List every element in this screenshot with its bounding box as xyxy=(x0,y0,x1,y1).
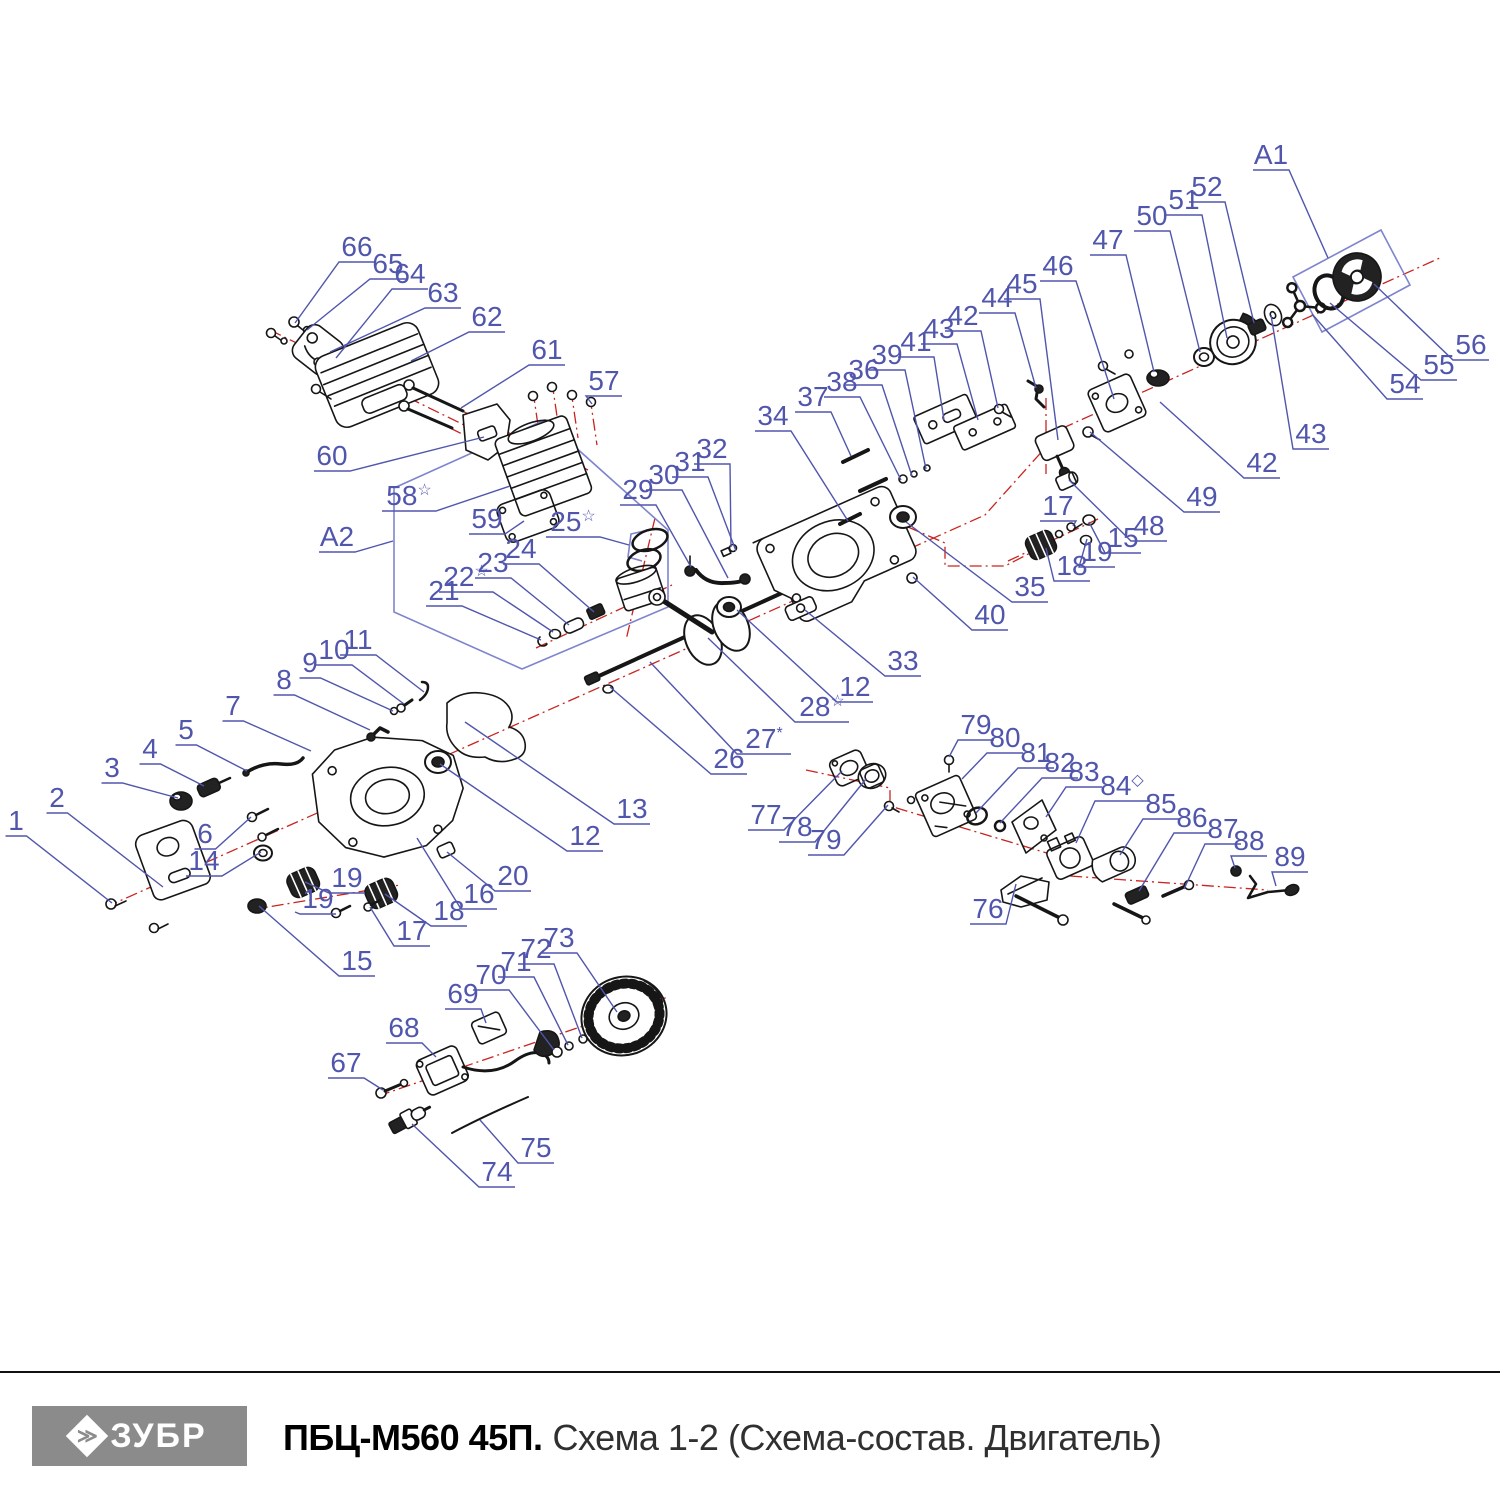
svg-text:12: 12 xyxy=(569,820,600,851)
svg-text:33: 33 xyxy=(887,645,918,676)
svg-text:19: 19 xyxy=(1081,536,1112,567)
oil-pump-clutch-group xyxy=(1023,245,1388,561)
part-label-A2: A2 xyxy=(319,521,393,552)
svg-text:67: 67 xyxy=(330,1047,361,1078)
part-label-68: 68 xyxy=(386,1012,436,1057)
muffler-assembly xyxy=(267,317,511,460)
svg-text:38: 38 xyxy=(826,366,857,397)
part-label-5: 5 xyxy=(176,714,248,771)
part-label-66: 66 xyxy=(295,231,375,323)
part-label-43: 43 xyxy=(1271,315,1329,449)
part-label-7: 7 xyxy=(223,690,312,751)
part-label-17: 17 xyxy=(370,907,430,946)
svg-text:7: 7 xyxy=(225,690,241,721)
svg-text:54: 54 xyxy=(1389,368,1420,399)
part-label-46: 46 xyxy=(1040,250,1114,399)
svg-text:86: 86 xyxy=(1176,802,1207,833)
svg-text:52: 52 xyxy=(1191,171,1222,202)
guide-plates xyxy=(913,394,1016,451)
svg-text:55: 55 xyxy=(1423,349,1454,380)
exploded-parts-diagram: 1234567891011121213141515161717181819191… xyxy=(0,0,1500,1370)
part-label-4: 4 xyxy=(140,733,205,786)
part-label-11: 11 xyxy=(340,624,424,692)
svg-text:73: 73 xyxy=(543,922,574,953)
svg-text:17: 17 xyxy=(1042,490,1073,521)
brand-logo: ≫ ЗУБР xyxy=(32,1406,247,1466)
svg-text:40: 40 xyxy=(974,599,1005,630)
svg-text:75: 75 xyxy=(520,1132,551,1163)
svg-text:32: 32 xyxy=(696,433,727,464)
part-label-12: 12 xyxy=(737,610,873,702)
crankcase-right xyxy=(717,450,930,629)
svg-text:1: 1 xyxy=(8,805,24,836)
part-label-52: 52 xyxy=(1189,171,1254,323)
part-label-33: 33 xyxy=(805,610,921,676)
part-label-3: 3 xyxy=(102,752,179,798)
svg-text:39: 39 xyxy=(871,339,902,370)
part-label-14: 14 xyxy=(186,845,261,876)
svg-text:18: 18 xyxy=(433,895,464,926)
svg-text:83: 83 xyxy=(1068,756,1099,787)
svg-text:84◇: 84◇ xyxy=(1100,770,1144,801)
svg-text:A2: A2 xyxy=(320,521,354,552)
svg-text:49: 49 xyxy=(1186,481,1217,512)
schematic-page: 1234567891011121213141515161717181819191… xyxy=(0,0,1500,1500)
part-label-49: 49 xyxy=(1090,432,1220,512)
part-label-19: 19 xyxy=(1079,536,1115,567)
svg-text:11: 11 xyxy=(343,624,372,655)
part-label-61: 61 xyxy=(461,334,565,408)
svg-text:34: 34 xyxy=(757,400,788,431)
part-label-79: 79 xyxy=(808,805,888,855)
part-label-59: 59 xyxy=(469,503,524,534)
svg-text:24: 24 xyxy=(505,533,536,564)
impulse-hose-group xyxy=(685,545,750,585)
part-drawings xyxy=(106,245,1389,1135)
svg-text:A1: A1 xyxy=(1254,139,1288,170)
part-label-42: 42 xyxy=(1160,402,1280,478)
part-label-8: 8 xyxy=(274,664,371,730)
document-title: ПБЦ-М560 45П. Схема 1-2 (Схема-состав. Д… xyxy=(283,1416,1161,1460)
part-label-28: 28☆ xyxy=(708,638,849,722)
svg-text:68: 68 xyxy=(388,1012,419,1043)
svg-text:2: 2 xyxy=(49,782,65,813)
part-label-47: 47 xyxy=(1090,224,1154,372)
svg-text:19: 19 xyxy=(302,883,333,914)
svg-text:19: 19 xyxy=(331,862,362,893)
svg-text:26: 26 xyxy=(713,743,744,774)
svg-text:63: 63 xyxy=(427,277,458,308)
svg-text:25☆: 25☆ xyxy=(550,506,596,537)
part-label-54: 54 xyxy=(1312,314,1423,399)
svg-text:56: 56 xyxy=(1455,329,1486,360)
part-label-89: 89 xyxy=(1272,841,1308,886)
part-label-74: 74 xyxy=(412,1124,515,1187)
part-label-17: 17 xyxy=(1040,490,1076,526)
svg-text:62: 62 xyxy=(471,301,502,332)
svg-text:57: 57 xyxy=(588,365,619,396)
svg-text:78: 78 xyxy=(781,811,812,842)
svg-text:46: 46 xyxy=(1042,250,1073,281)
part-labels: 1234567891011121213141515161717181819191… xyxy=(6,139,1490,1187)
svg-text:43: 43 xyxy=(923,313,954,344)
svg-text:65: 65 xyxy=(372,248,403,279)
svg-text:76: 76 xyxy=(972,893,1003,924)
svg-text:77: 77 xyxy=(750,799,781,830)
svg-text:47: 47 xyxy=(1092,224,1123,255)
svg-text:43: 43 xyxy=(1295,418,1326,449)
brand-arrows-icon: ≫ xyxy=(77,1426,98,1446)
svg-text:69: 69 xyxy=(447,978,478,1009)
svg-text:9: 9 xyxy=(302,647,318,678)
scheme-subtitle: Схема 1-2 (Схема-состав. Двигатель) xyxy=(553,1417,1162,1459)
svg-text:42: 42 xyxy=(1246,447,1277,478)
svg-text:16: 16 xyxy=(463,878,494,909)
svg-text:23: 23 xyxy=(477,547,508,578)
svg-text:35: 35 xyxy=(1014,571,1045,602)
part-label-40: 40 xyxy=(913,577,1008,630)
svg-text:80: 80 xyxy=(989,722,1020,753)
part-label-67: 67 xyxy=(328,1047,383,1090)
part-label-45: 45 xyxy=(1004,268,1058,440)
part-label-79: 79 xyxy=(949,709,994,757)
svg-text:88: 88 xyxy=(1233,825,1264,856)
part-label-51: 51 xyxy=(1166,184,1227,338)
model-name: ПБЦ-М560 45П. xyxy=(283,1417,543,1459)
part-label-26: 26 xyxy=(610,687,747,774)
svg-text:79: 79 xyxy=(810,824,841,855)
svg-text:5: 5 xyxy=(178,714,194,745)
svg-text:4: 4 xyxy=(142,733,158,764)
part-label-24: 24 xyxy=(503,533,594,612)
svg-text:45: 45 xyxy=(1006,268,1037,299)
svg-text:58☆: 58☆ xyxy=(386,480,432,511)
svg-text:66: 66 xyxy=(341,231,372,262)
part-label-A1: A1 xyxy=(1253,139,1328,258)
svg-text:60: 60 xyxy=(316,440,347,471)
part-label-12: 12 xyxy=(440,764,603,851)
part-label-15: 15 xyxy=(259,906,375,976)
svg-text:50: 50 xyxy=(1136,200,1167,231)
svg-text:8: 8 xyxy=(276,664,292,695)
part-label-13: 13 xyxy=(465,722,650,824)
svg-text:15: 15 xyxy=(341,945,372,976)
ignition-flywheel-group xyxy=(376,965,678,1136)
part-label-88: 88 xyxy=(1231,825,1267,868)
svg-text:3: 3 xyxy=(104,752,120,783)
svg-text:89: 89 xyxy=(1274,841,1305,872)
svg-text:20: 20 xyxy=(497,860,528,891)
svg-text:48: 48 xyxy=(1133,510,1164,541)
svg-text:37: 37 xyxy=(797,381,828,412)
svg-text:85: 85 xyxy=(1145,788,1176,819)
svg-text:27*: 27* xyxy=(745,723,782,754)
brand-diamond-icon: ≫ xyxy=(66,1415,108,1457)
svg-text:61: 61 xyxy=(531,334,562,365)
part-label-60: 60 xyxy=(314,437,484,471)
svg-text:28☆: 28☆ xyxy=(799,691,845,722)
footer-divider xyxy=(0,1371,1500,1373)
brand-name: ЗУБР xyxy=(110,1419,206,1453)
svg-text:59: 59 xyxy=(471,503,502,534)
part-label-39: 39 xyxy=(869,339,926,469)
part-label-25: 25☆ xyxy=(546,506,629,545)
svg-text:14: 14 xyxy=(188,845,219,876)
svg-text:79: 79 xyxy=(960,709,991,740)
svg-text:74: 74 xyxy=(481,1156,512,1187)
part-label-1: 1 xyxy=(6,805,113,903)
svg-text:13: 13 xyxy=(616,793,647,824)
